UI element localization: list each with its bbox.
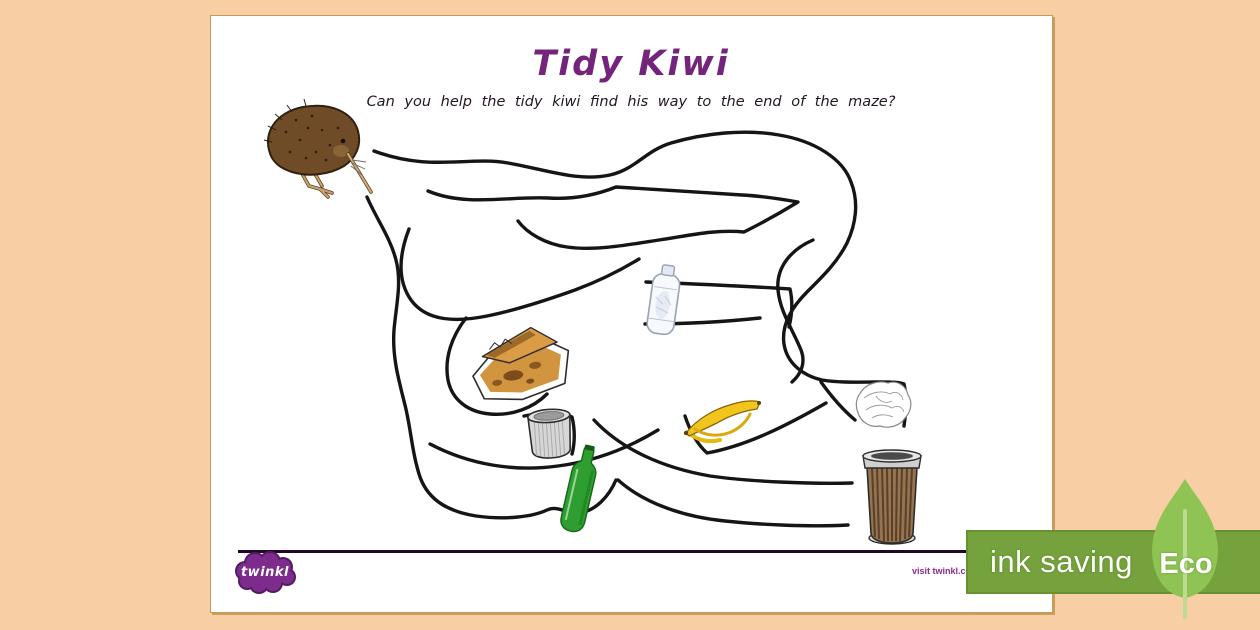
kiwi-bird-icon	[264, 99, 371, 197]
banana-peel-icon	[684, 401, 761, 441]
twinkl-logo: twinkl	[233, 551, 297, 595]
crumpled-paper-icon	[856, 382, 911, 427]
tin-can-icon	[527, 408, 572, 459]
canvas-background: Tidy Kiwi Can you help the tidy kiwi fin…	[0, 0, 1260, 630]
footer-divider	[238, 550, 1022, 553]
ink-saving-label: ink saving	[968, 544, 1133, 580]
pizza-box-icon	[467, 323, 574, 406]
eco-label: Eco	[1146, 544, 1226, 584]
maze-paths	[367, 132, 906, 526]
trash-can-icon	[863, 450, 921, 544]
twinkl-logo-text: twinkl	[233, 551, 297, 593]
